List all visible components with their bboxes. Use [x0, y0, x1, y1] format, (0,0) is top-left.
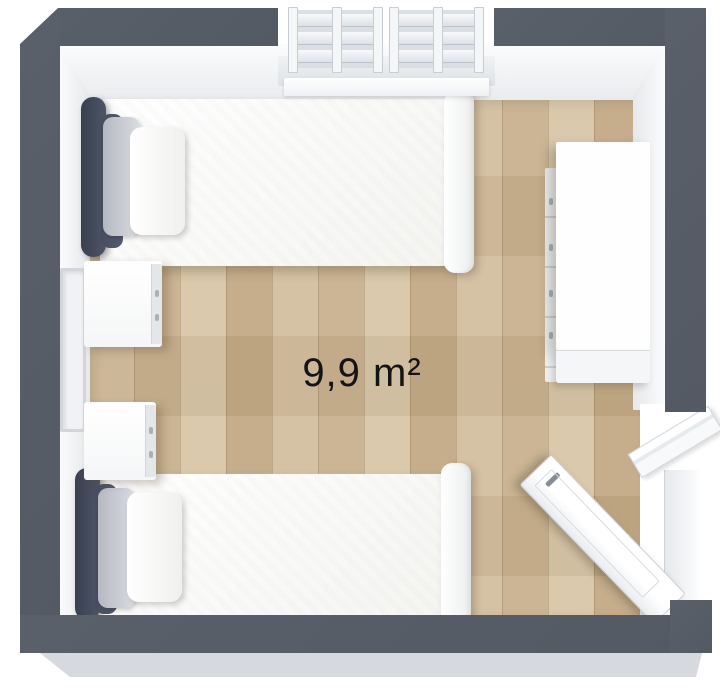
drawer-handle	[149, 427, 153, 434]
wall-bottom	[20, 615, 706, 653]
wall-outer-edge	[30, 653, 702, 677]
window-post	[433, 7, 443, 73]
wall-left	[20, 8, 60, 653]
drawer-handle	[155, 290, 159, 297]
bed-bottom-pillow-white	[127, 492, 182, 602]
drawer-handle	[149, 451, 153, 458]
window-sill	[284, 78, 489, 96]
door-handle	[545, 472, 561, 487]
room-area-label: 9,9 m²	[252, 348, 472, 398]
window-section-left	[288, 10, 383, 68]
nightstand-top-front	[151, 264, 162, 343]
floorplan-room: 9,9 m²	[0, 0, 720, 691]
drawer-handle	[549, 244, 553, 251]
wall-right	[665, 8, 706, 412]
window-post	[373, 7, 383, 73]
wall-corner-stub	[670, 600, 712, 653]
window-post	[474, 7, 484, 73]
bed-top-pillow-white	[130, 127, 185, 235]
bed-bottom-footboard	[441, 463, 471, 623]
window-section-right	[389, 10, 484, 68]
drawer-handle	[549, 198, 553, 205]
nightstand-bottom-front	[145, 405, 156, 477]
left-wall-window	[60, 268, 86, 432]
dresser-top	[556, 142, 650, 350]
top-wall-window	[276, 4, 497, 96]
window-post	[332, 7, 342, 73]
window-post	[389, 7, 399, 73]
nightstand-bottom	[84, 402, 156, 480]
bed-top-footboard	[444, 91, 474, 273]
dresser-front	[556, 350, 650, 383]
drawer-handle	[549, 290, 553, 297]
window-post	[288, 7, 298, 73]
drawer-handle	[155, 314, 159, 321]
nightstand-top	[84, 261, 162, 347]
drawer-handle	[549, 332, 553, 339]
